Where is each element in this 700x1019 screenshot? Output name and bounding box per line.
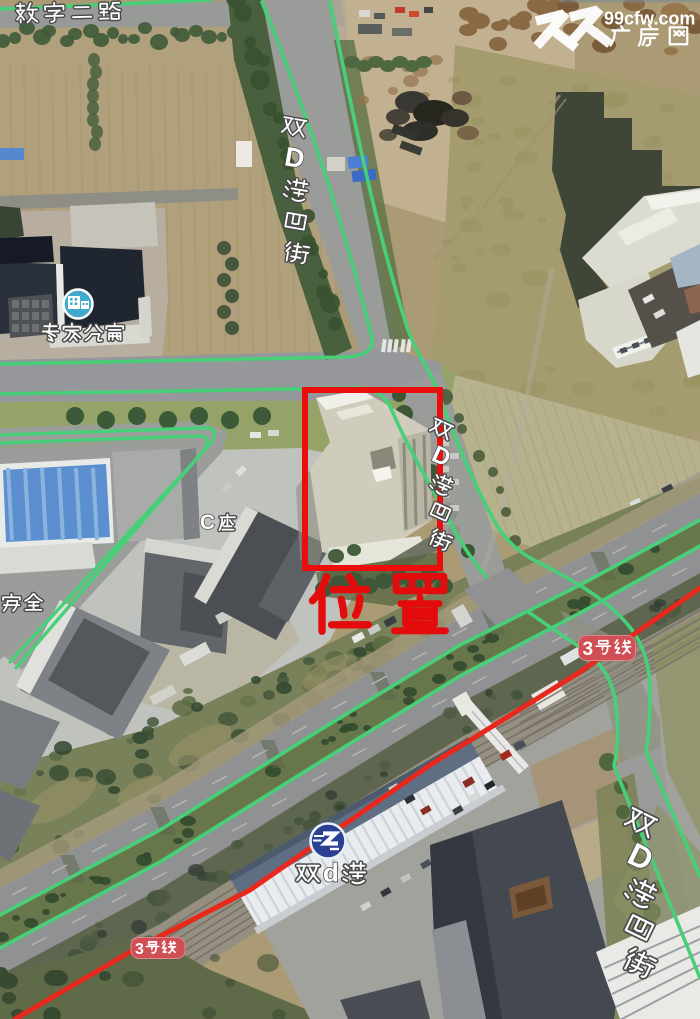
- svg-text:C: C: [200, 511, 215, 534]
- svg-text:d: d: [323, 857, 339, 887]
- svg-text:3: 3: [135, 941, 144, 958]
- svg-text:3: 3: [583, 639, 594, 660]
